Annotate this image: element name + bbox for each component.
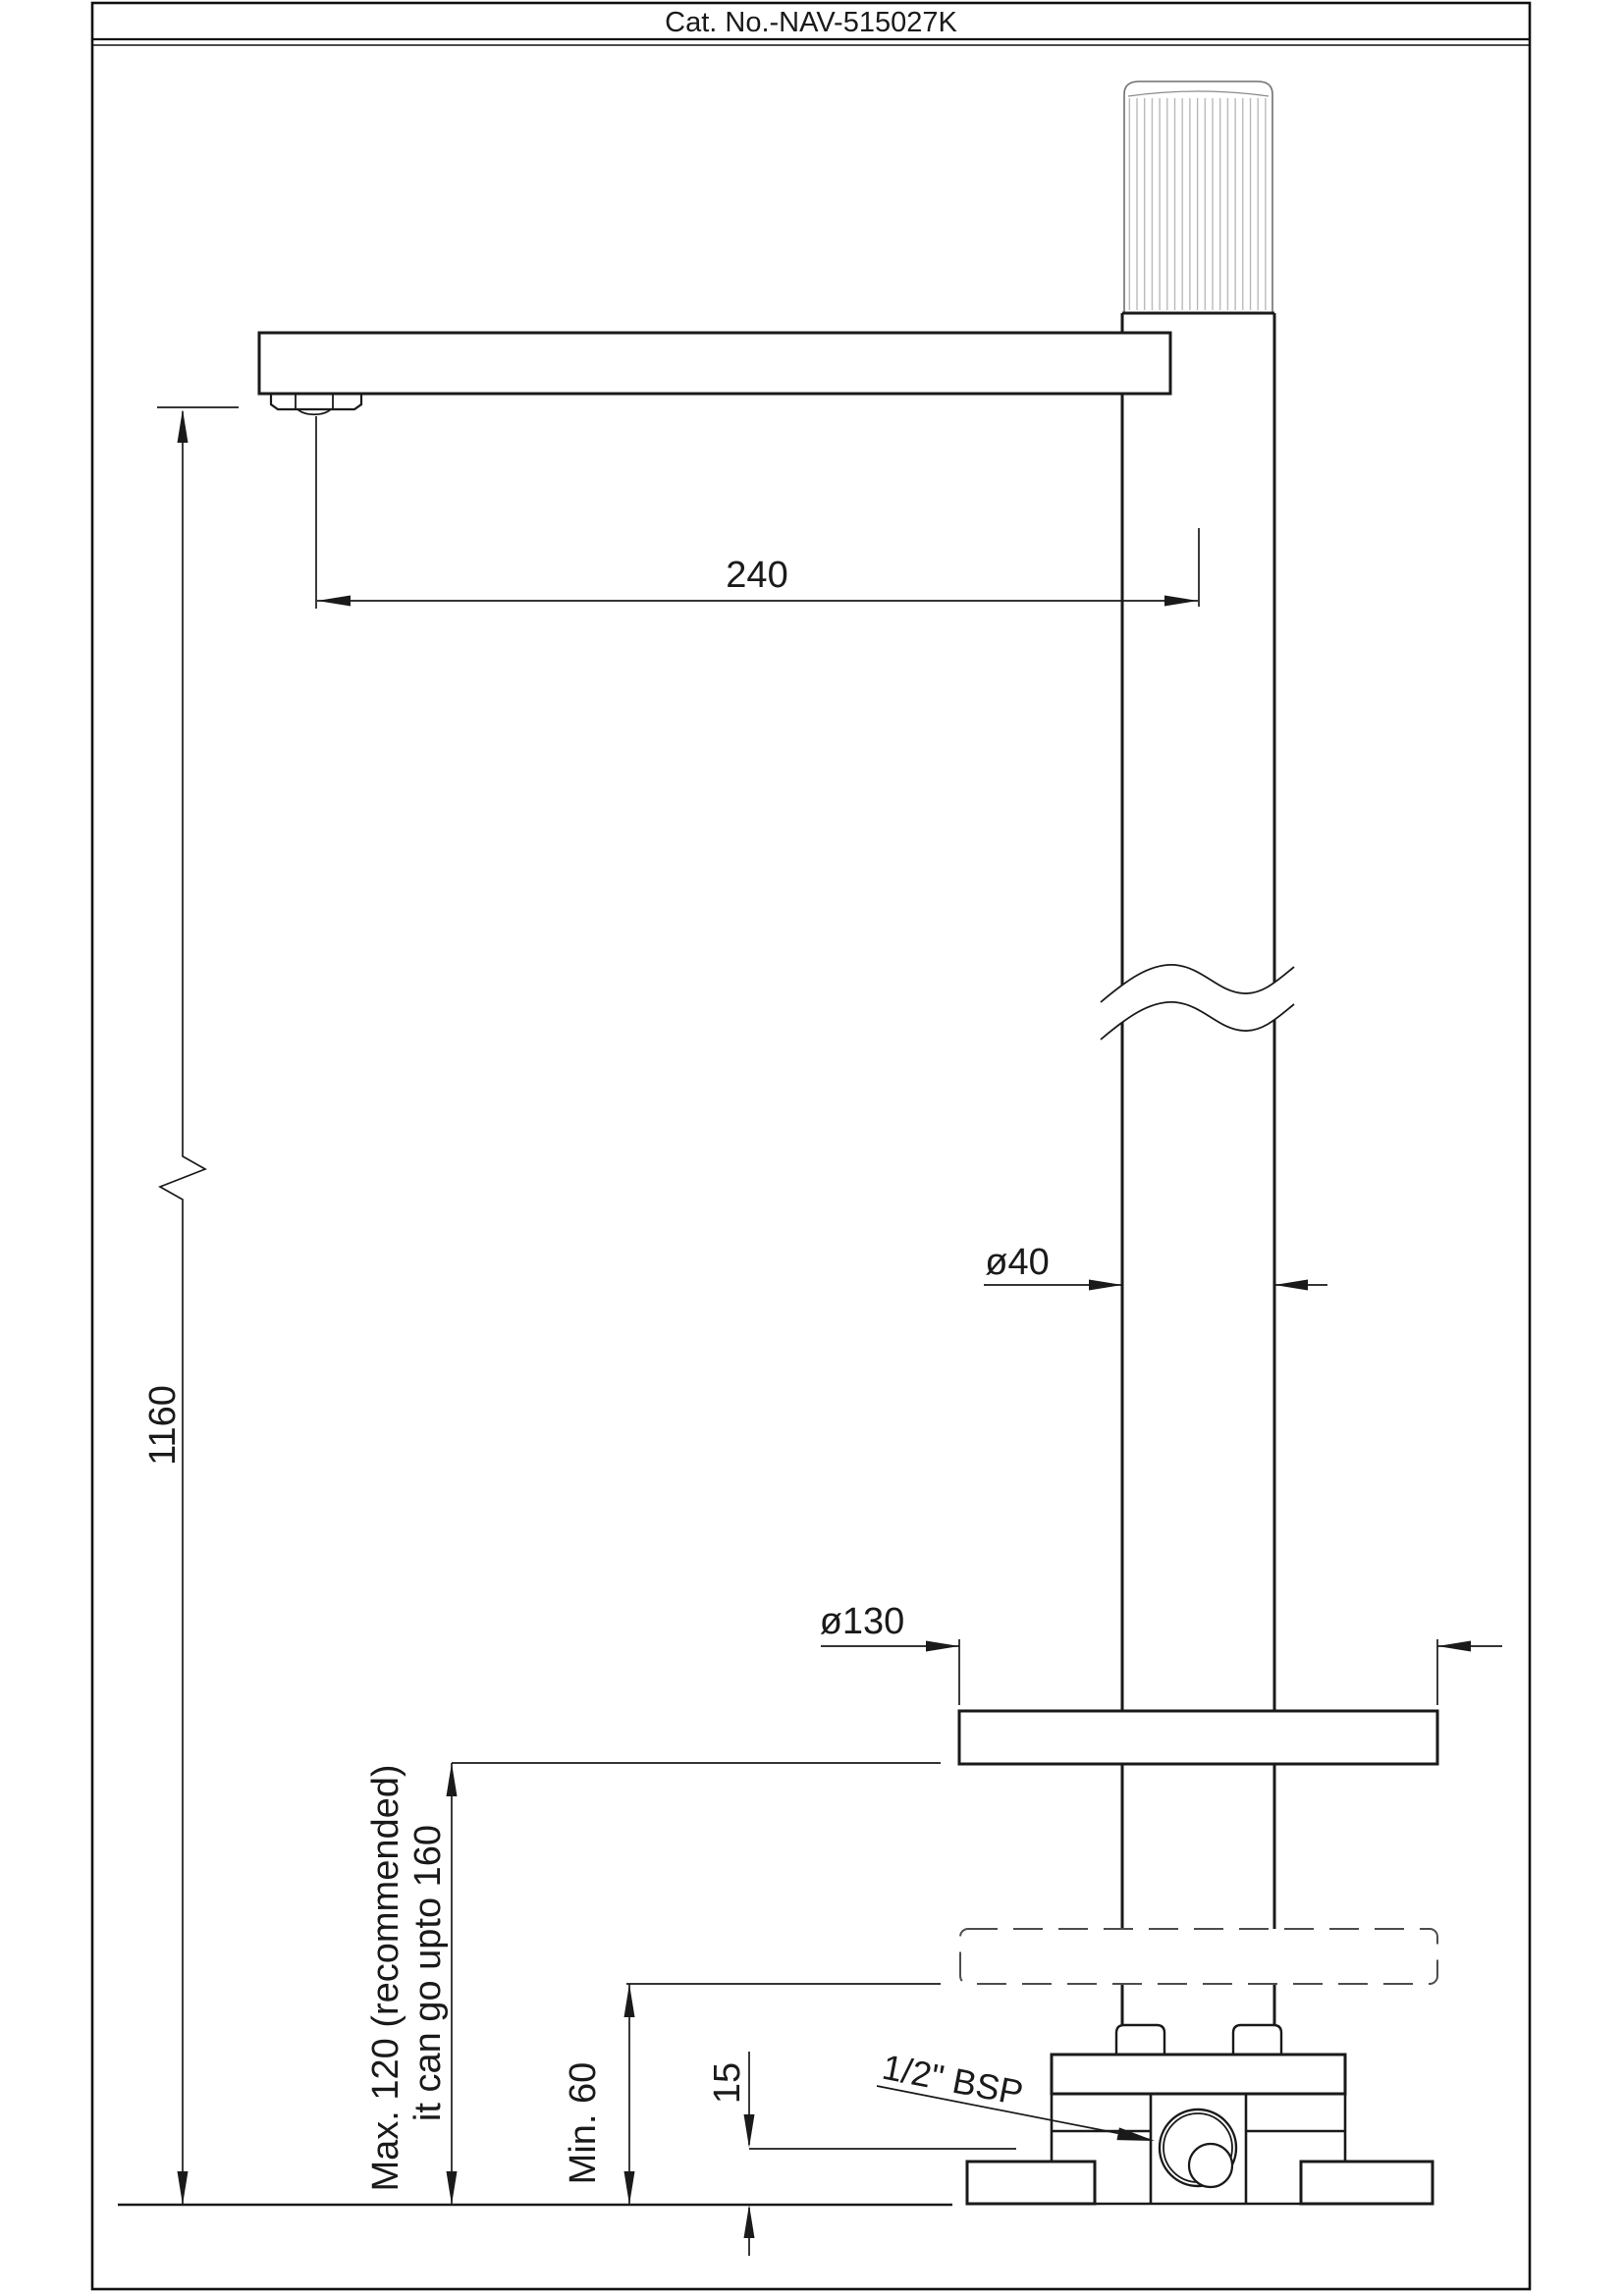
inlet-port	[1160, 2109, 1236, 2187]
handle-knurl-texture	[1127, 98, 1270, 310]
deck-hidden-outline	[960, 1929, 1437, 1984]
dim-floor-step: 15	[707, 2062, 748, 2104]
pipe-break-symbol	[1101, 965, 1294, 1040]
dim-spout-reach: 240	[726, 555, 787, 596]
dim-pipe-diameter: ø40	[985, 1242, 1049, 1283]
aerator	[271, 394, 361, 414]
spout	[259, 333, 1170, 394]
technical-drawing: Cat. No.-NAV-515027K	[0, 0, 1623, 2296]
handle-knob	[1124, 81, 1272, 313]
inlet-connectors	[1116, 2025, 1281, 2055]
label-inlet-thread: 1/2" BSP	[879, 2047, 1026, 2113]
drawing-sheet: Cat. No.-NAV-515027K	[0, 0, 1623, 2296]
dim-deck-max-line2: it can go upto 160	[407, 1825, 449, 2121]
dim-deck-max-line1: Max. 120 (recommended)	[365, 1764, 406, 2191]
dimension-lines	[157, 407, 1502, 2256]
dim-overall-height: 1160	[142, 1385, 184, 1466]
dim-deck-min: Min. 60	[563, 2062, 604, 2185]
dim-flange-diameter: ø130	[820, 1601, 905, 1642]
handle-top-rim	[1128, 91, 1269, 96]
floor-flange	[959, 1711, 1437, 1764]
catalog-number-title: Cat. No.-NAV-515027K	[665, 7, 957, 38]
